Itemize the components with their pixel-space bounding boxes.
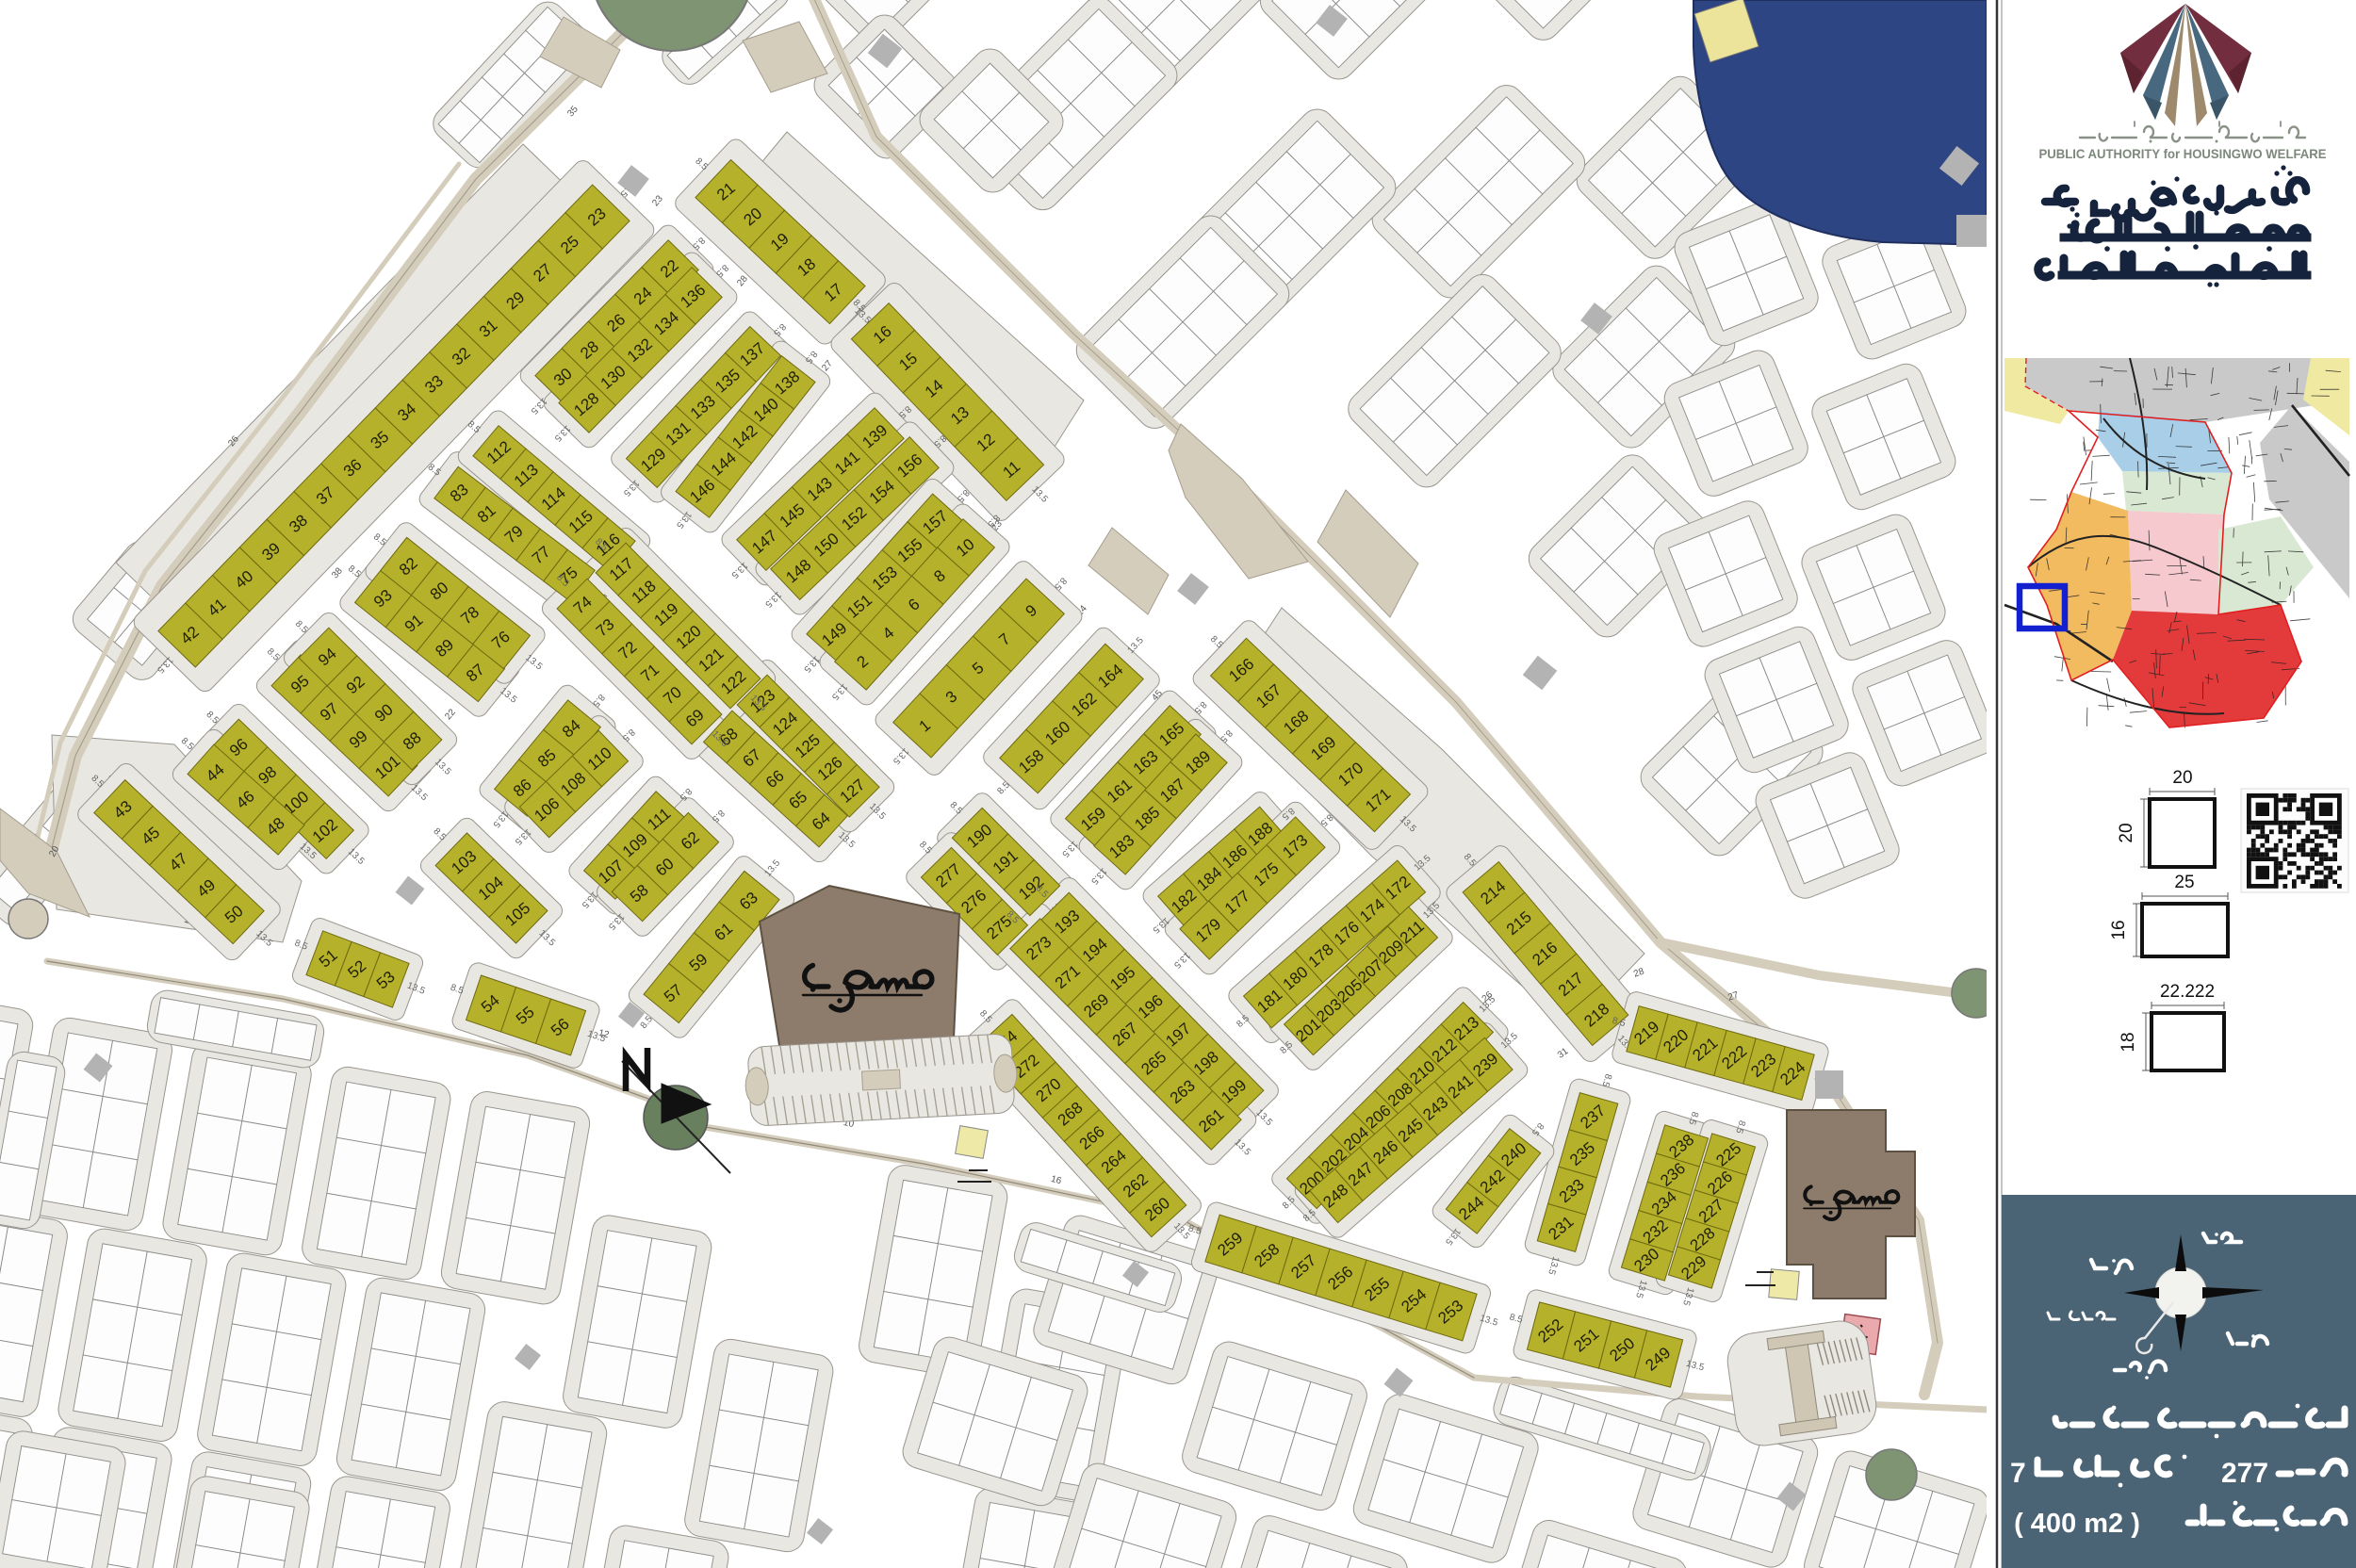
svg-text:20: 20 bbox=[2117, 823, 2136, 842]
svg-text:18: 18 bbox=[2119, 1032, 2138, 1052]
svg-text:20: 20 bbox=[2172, 768, 2192, 788]
svg-text:7: 7 bbox=[2010, 1458, 2026, 1489]
svg-text:16: 16 bbox=[2109, 920, 2129, 939]
svg-text:22.222: 22.222 bbox=[2160, 982, 2215, 1002]
svg-text:277: 277 bbox=[2221, 1458, 2268, 1489]
svg-text:PUBLIC AUTHORITY for HOUSINGWO: PUBLIC AUTHORITY for HOUSINGWO WELFARE bbox=[2039, 146, 2327, 161]
svg-text:( 400 m2 ): ( 400 m2 ) bbox=[2014, 1509, 2140, 1539]
svg-text:25: 25 bbox=[2174, 873, 2194, 892]
